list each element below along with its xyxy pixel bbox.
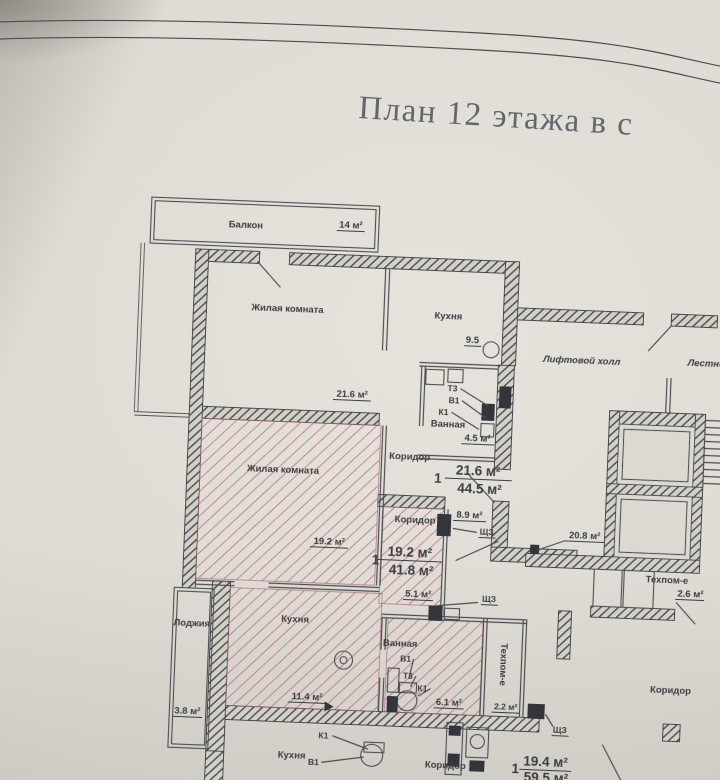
room-label-kitchen-top: Кухня: [434, 311, 462, 323]
room-label-kitchen-bottom: Кухня: [278, 750, 306, 762]
riser-label-t3-top: Т3: [447, 383, 458, 393]
panel-label-shch3-a: ЩЗ: [480, 527, 494, 538]
apt1-number: 1: [434, 471, 443, 486]
room-label-tech-mid: Техпом-е: [497, 643, 510, 686]
photographed-floorplan-page: { "title": "План 12 этажа в с", "colors"…: [0, 0, 720, 780]
page-title: План 12 этажа в с: [358, 90, 635, 143]
room-label-corridor-top: Коридор: [389, 451, 430, 464]
room-label-bath-top: Ванная: [431, 418, 466, 430]
room-label-living-top: Жилая комната: [250, 302, 324, 316]
exterior-outline: [134, 243, 196, 418]
area-label-tech-right: 2.6 м²: [677, 588, 703, 600]
document-top-rules: [0, 20, 720, 83]
technical-cells: [588, 569, 687, 742]
area-label-corridor-common: 20.8 м²: [569, 530, 601, 542]
apt3-number: 1: [511, 761, 520, 776]
area-label-kitchen-top: 9.5: [466, 335, 480, 347]
stair-treads: [703, 420, 720, 490]
apt2-living-area: 19.2 м²: [387, 544, 433, 561]
floor-plan-drawing: План 12 этажа в с: [0, 0, 720, 780]
room-label-balcony: Балкон: [228, 219, 263, 231]
area-label-89: 8.9 м²: [456, 510, 482, 522]
area-label-bath-top: 4.5 м²: [464, 433, 490, 445]
riser-label-k1-top: К1: [438, 407, 449, 417]
room-label-kitchen-mid: Кухня: [281, 614, 309, 626]
room-label-corridor-mid: Коридор: [395, 514, 436, 527]
apt2-total-area: 41.8 м²: [389, 562, 435, 579]
area-label-kitchen-mid: 11.4 м²: [291, 691, 322, 703]
riser-label-v1-top: В1: [448, 395, 460, 405]
area-label-living-mid: 19.2 м²: [313, 536, 345, 548]
room-label-staircase: Лестничн: [686, 358, 720, 371]
room-label-corridor-bottom: Коридор: [425, 759, 466, 772]
apt1-total-area: 44.5 м²: [457, 481, 503, 498]
riser-label-k1-bottom: К1: [318, 730, 329, 740]
area-label-living-top: 21.6 м²: [336, 389, 368, 401]
apt3-total-area: 59.5 м²: [523, 769, 569, 780]
area-label-bath-mid: 6.1 м²: [436, 697, 462, 709]
area-label-tech-mid: 2.2 м²: [494, 701, 518, 712]
riser-label-k1-mid: К1: [417, 683, 428, 693]
panel-label-shch3-b: ЩЗ: [482, 594, 496, 605]
riser-label-t3-mid: Т3: [403, 671, 414, 681]
riser-label-v1-mid: В1: [400, 653, 412, 663]
room-label-loggia: Лоджия: [173, 617, 210, 629]
area-label-loggia: 3.8 м²: [174, 705, 200, 717]
riser-label-v1-bottom: В1: [308, 757, 320, 767]
room-label-elevator-hall: Лифтовой холл: [542, 354, 621, 368]
area-label-51: 5.1 м²: [405, 589, 431, 601]
room-label-tech-right: Техпом-е: [645, 574, 688, 587]
apt3-living-area: 19.4 м²: [523, 753, 569, 770]
apt1-living-area: 21.6 м²: [456, 463, 502, 480]
area-label-balcony: 14 м²: [339, 220, 363, 232]
room-label-corridor-right: Коридор: [650, 684, 691, 697]
panel-label-shch3-c: ЩЗ: [553, 725, 567, 736]
room-label-bath-mid: Ванная: [383, 638, 418, 650]
plan-group: Балкон 14 м² Жилая комната 21.6 м² Кухня…: [120, 197, 720, 780]
